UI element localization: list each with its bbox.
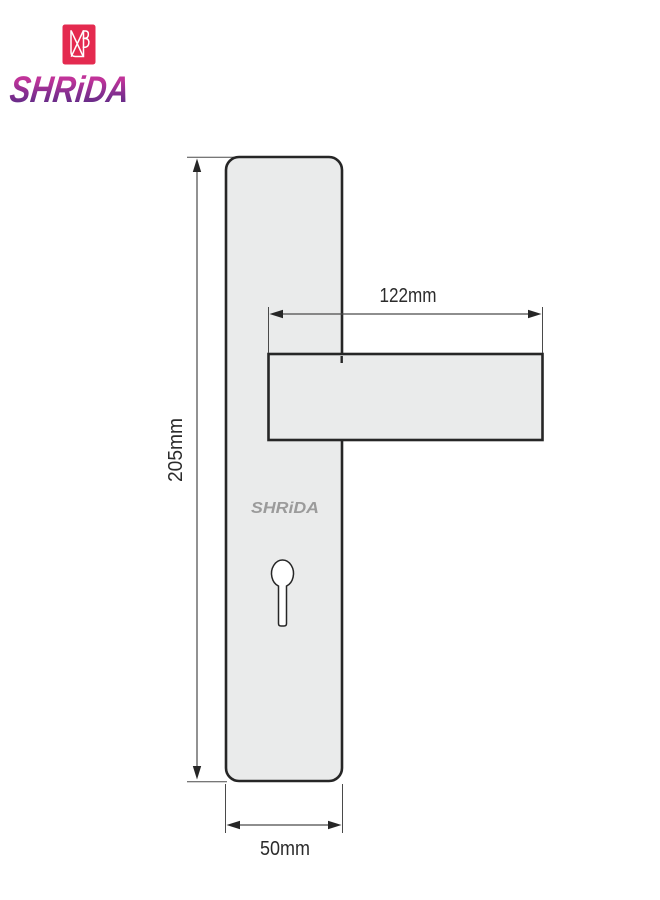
dim-width-label: 50mm (260, 838, 310, 860)
backplate (226, 157, 342, 781)
arrow-right-icon (528, 310, 542, 318)
plate-brand-label: SHRiDA (251, 500, 319, 517)
lever-handle (269, 354, 543, 440)
dim-height-label: 205mm (165, 418, 187, 482)
arrow-left-icon (227, 821, 241, 829)
arrow-down-icon (193, 766, 201, 780)
dim-handle-label: 122mm (380, 285, 437, 307)
dimension-diagram: SHRiDA 205mm 122mm 50mm (0, 0, 660, 900)
product-image: SHRiDA SHRiDA 205mm 122mm (0, 0, 660, 900)
arrow-up-icon (193, 159, 201, 173)
arrow-right-icon (328, 821, 342, 829)
